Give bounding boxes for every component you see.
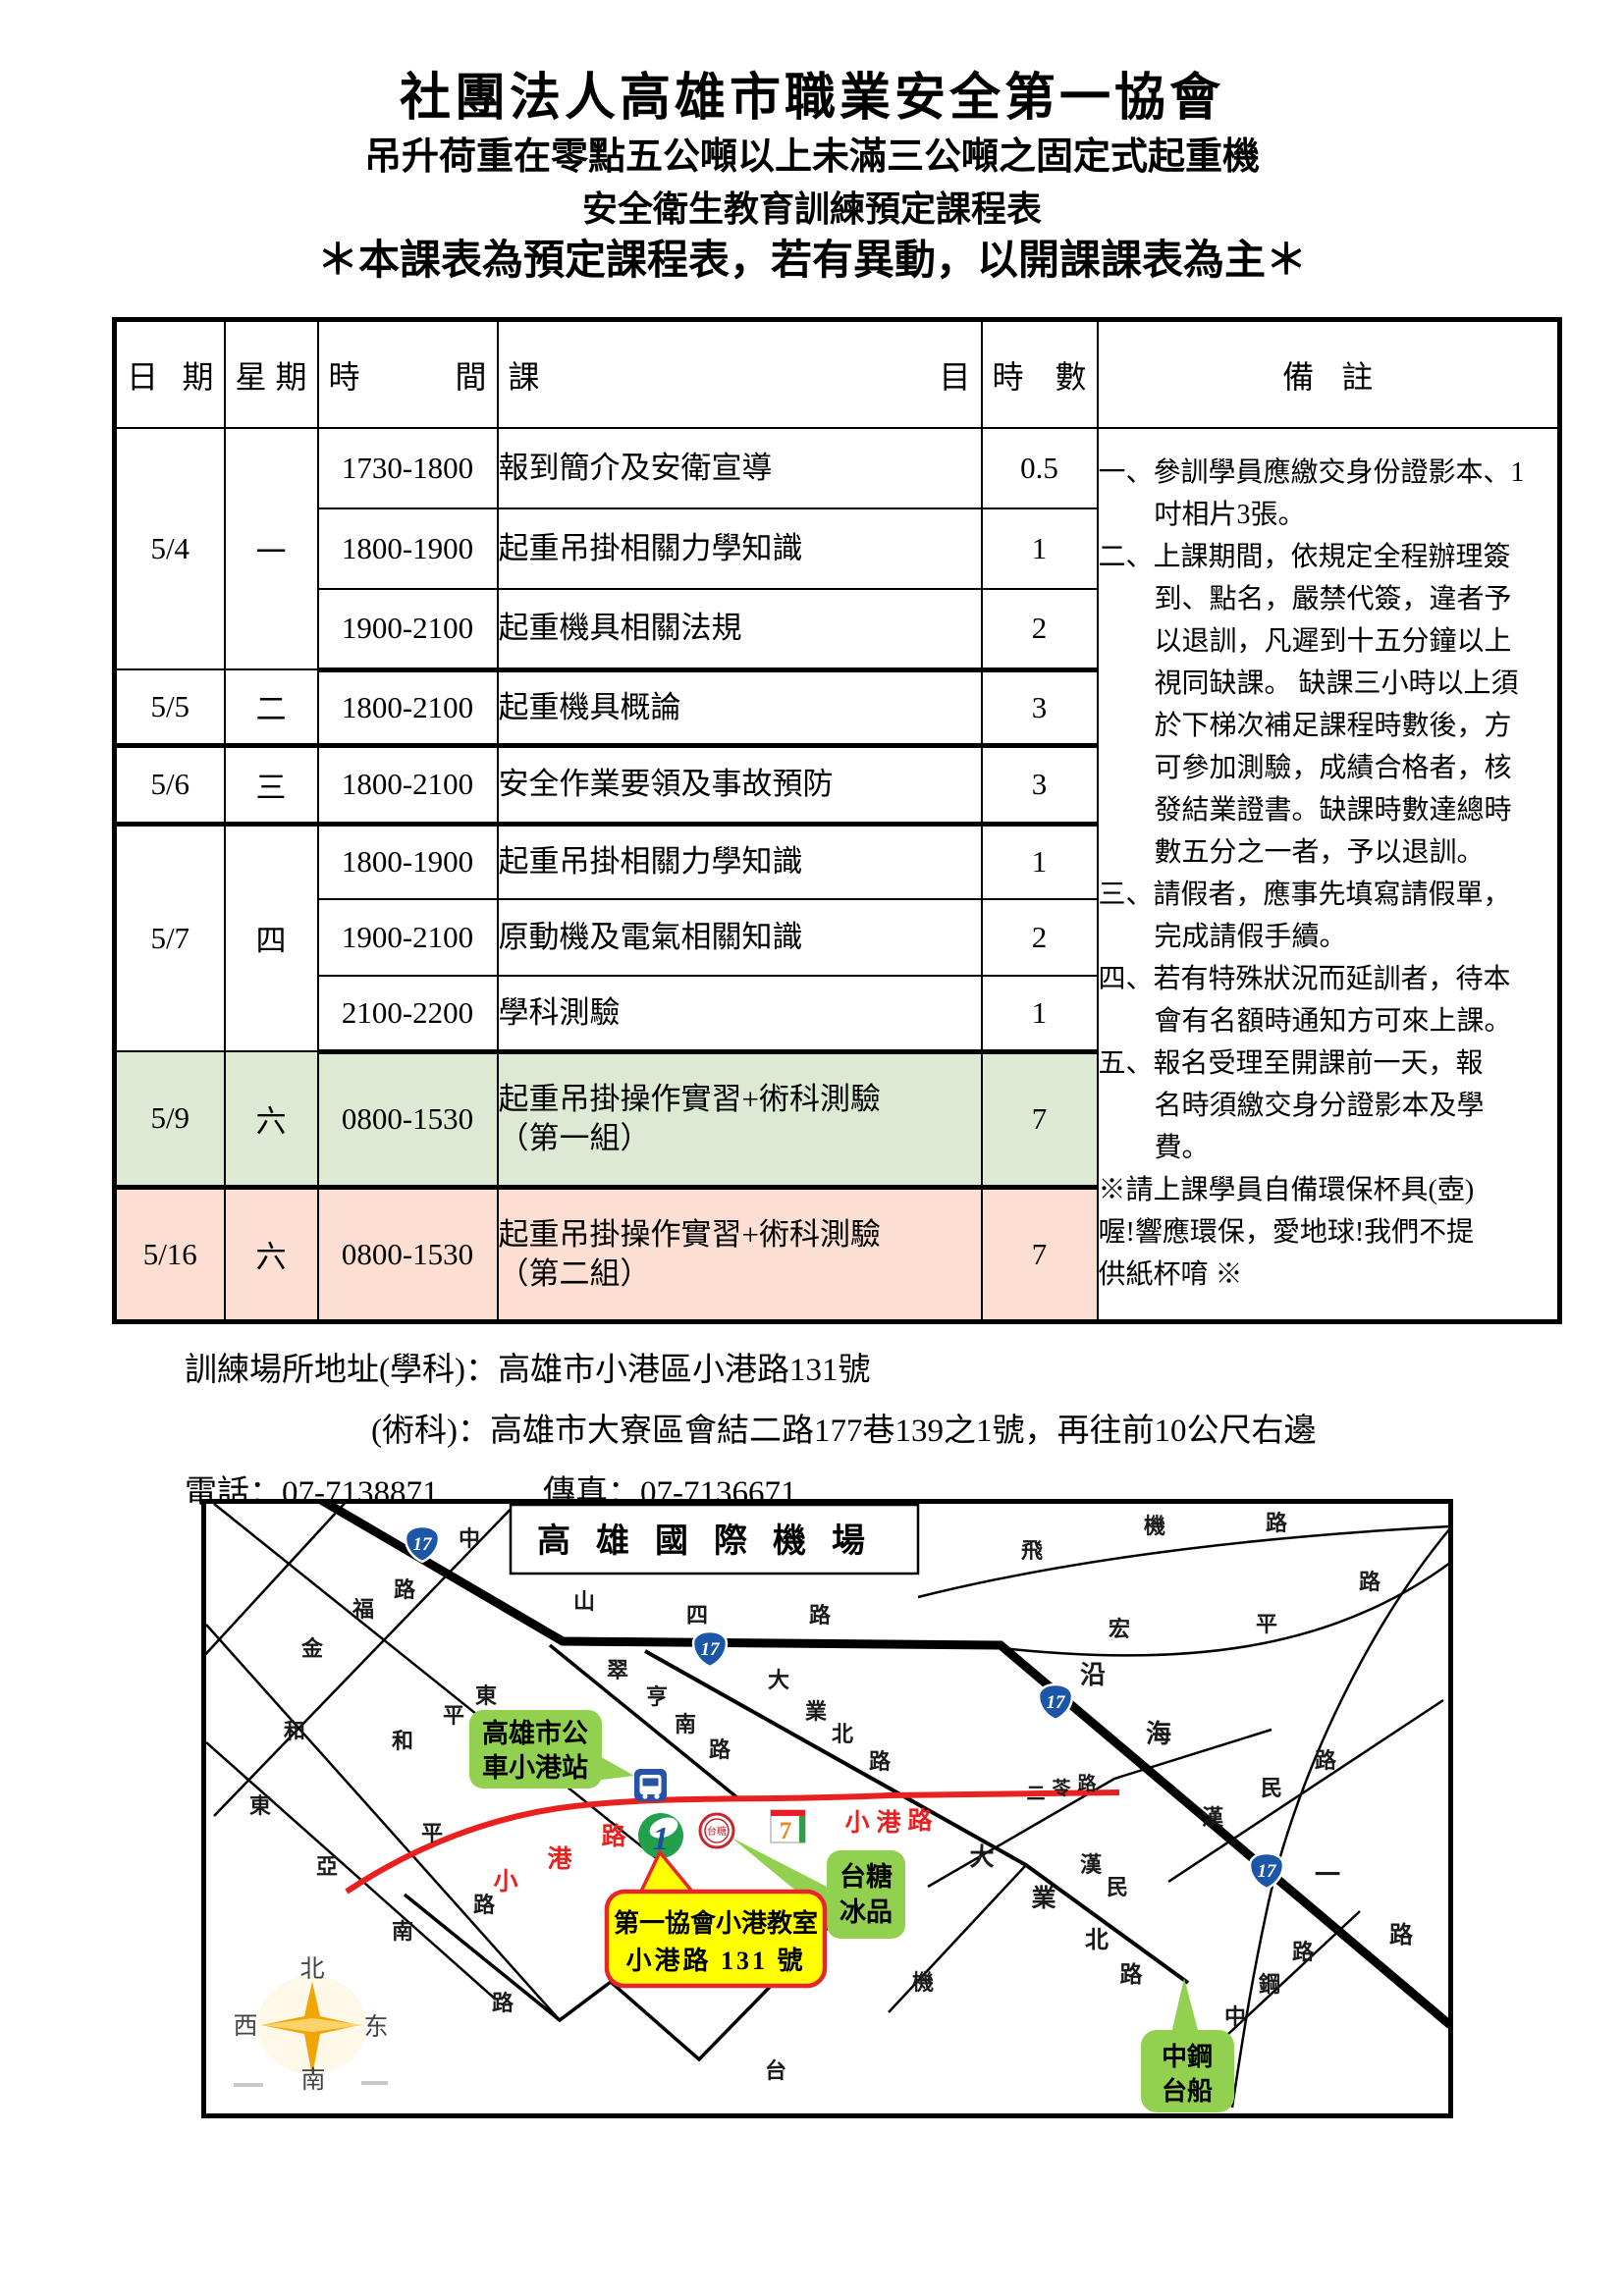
map-road-label: 路	[473, 1893, 496, 1917]
note-line: 視同缺課。 缺課三小時以上須	[1099, 663, 1558, 705]
course-cell: 安全作業要領及事故預防	[498, 745, 982, 824]
map-road-label: 平	[421, 1821, 443, 1845]
course-subtitle-2: 安全衛生教育訓練預定課程表	[0, 185, 1624, 234]
taisugar-ice-label-line2: 冰品	[839, 1897, 893, 1927]
header-char: 目	[939, 352, 970, 398]
bus-station-label-line2: 車小港站	[482, 1753, 588, 1783]
map-road-label: 路	[1266, 1511, 1288, 1535]
map-road-label: 平	[1256, 1612, 1277, 1636]
course-schedule-table: 日期 星期 時間 課目 時數 備註 5/4 一 1730-1800 報到簡介及安…	[112, 317, 1562, 1324]
note-line: 五、報名受理至開課前一天，報	[1099, 1042, 1558, 1085]
weekday-cell: 四	[225, 824, 318, 1051]
map-road-label: 亨	[646, 1684, 668, 1709]
taisugar-seal-text: 台糖	[707, 1825, 727, 1838]
time-cell: 0800-1530	[318, 1187, 498, 1321]
scanned-course-schedule-page: 社團法人高雄市職業安全第一協會 吊升荷重在零點五公噸以上未滿三公噸之固定式起重機…	[0, 0, 1624, 2296]
note-line: 於下梯次補足課程時數後，方	[1099, 705, 1558, 747]
time-cell: 0800-1530	[318, 1051, 498, 1187]
svg-text:17: 17	[413, 1534, 434, 1555]
note-line: 名時須繳交身分證影本及學	[1099, 1085, 1558, 1127]
date-cell: 5/9	[115, 1051, 225, 1187]
map-road-label: 港	[876, 1808, 901, 1837]
date-cell: 5/16	[115, 1187, 225, 1321]
date-cell: 5/6	[115, 745, 225, 824]
map-road-label: 民	[1107, 1875, 1128, 1899]
map-road-label: 平	[443, 1703, 464, 1728]
airport-label-box: 高雄國際機場	[511, 1505, 918, 1574]
header-char: 間	[455, 352, 486, 398]
map-road-label: 大	[969, 1843, 994, 1871]
map-road-label: 中	[459, 1526, 480, 1551]
time-cell: 1800-1900	[318, 824, 498, 899]
note-line: 會有名額時通知方可來上課。	[1099, 1000, 1558, 1042]
map-road-label: 金	[300, 1636, 324, 1661]
header-char: 日	[127, 352, 158, 398]
map-road-label: 漢	[1080, 1852, 1103, 1877]
training-address-academic: 訓練場所地址(學科)：高雄市小港區小港路131號	[185, 1343, 870, 1390]
hours-cell: 7	[982, 1187, 1098, 1321]
map-road-label: 南	[675, 1712, 696, 1736]
csc-label-line2: 台船	[1162, 2076, 1213, 2106]
map-road-label: 亞	[316, 1854, 338, 1879]
compass-north-label: 北	[299, 1956, 324, 1983]
header-date: 日期	[115, 320, 225, 429]
seven-eleven-number: 7	[780, 1818, 792, 1844]
course-cell: 起重吊掛操作實習+術科測驗 （第一組）	[498, 1051, 982, 1187]
date-cell: 5/4	[115, 428, 225, 669]
map-road-label: 路	[1292, 1940, 1315, 1964]
header-notes: 備註	[1098, 320, 1560, 429]
hours-cell: 0.5	[982, 428, 1098, 508]
map-road-label: 機	[1144, 1514, 1165, 1538]
airport-label: 高雄國際機場	[537, 1522, 891, 1560]
map-road-label: 鋼	[1258, 1972, 1280, 1997]
notes-cell: 一、參訓學員應繳交身份證影本、1吋相片3張。二、上課期間，依規定全程辦理簽到、點…	[1098, 428, 1560, 1321]
note-line: 以退訓，凡遲到十五分鐘以上	[1099, 620, 1558, 663]
compass-south-label: 南	[300, 2066, 325, 2094]
map-road-label: 路	[394, 1577, 416, 1602]
note-line: 發結業證書。缺課時數達總時	[1099, 789, 1558, 831]
hours-cell: 2	[982, 899, 1098, 976]
map-road-label: 漢	[1202, 1805, 1224, 1830]
map-road-label: 路	[1359, 1570, 1381, 1594]
header-course: 課目	[498, 320, 982, 429]
map-road-label: 業	[1031, 1885, 1056, 1912]
header-char: 期	[182, 352, 213, 398]
course-cell: 起重吊掛操作實習+術科測驗 （第二組）	[498, 1187, 982, 1321]
map-road-label: 大	[768, 1668, 789, 1692]
time-cell: 1730-1800	[318, 428, 498, 508]
map-road-label: 東	[249, 1793, 271, 1818]
course-line2: （第二組）	[499, 1255, 981, 1294]
map-road-label: 機	[912, 1970, 934, 1995]
note-line: 喔!響應環保，愛地球!我們不提	[1099, 1211, 1558, 1254]
map-road-label: 路	[869, 1749, 892, 1774]
note-line: 完成請假手續。	[1099, 916, 1558, 958]
map-road-label: 和	[392, 1729, 413, 1753]
map-road-label: 路	[492, 1991, 514, 2015]
header-char: 時	[993, 352, 1024, 398]
map-road-label: 南	[392, 1919, 413, 1944]
schedule-disclaimer: ＊本課表為預定課程表，若有異動，以開課課表為主＊	[0, 234, 1624, 289]
note-line: 供紙杯唷 ※	[1099, 1254, 1558, 1296]
weekday-cell: 六	[225, 1187, 318, 1321]
map-road-label: 小	[844, 1809, 869, 1837]
csc-label-line1: 中鋼	[1162, 2043, 1213, 2071]
map-road-label: 路	[1389, 1921, 1414, 1949]
table-row: 5/4 一 1730-1800 報到簡介及安衛宣導 0.5 一、參訓學員應繳交身…	[115, 428, 1560, 508]
course-cell: 起重吊掛相關力學知識	[498, 824, 982, 899]
map-road-label: 福	[352, 1597, 374, 1622]
note-line: 到、點名，嚴禁代簽，違者予	[1099, 578, 1558, 620]
time-cell: 1900-2100	[318, 899, 498, 976]
time-cell: 1900-2100	[318, 589, 498, 669]
header-char: 期	[275, 352, 306, 398]
weekday-cell: 二	[225, 669, 318, 745]
hours-cell: 1	[982, 824, 1098, 899]
map-road-label: 路	[1120, 1961, 1144, 1987]
bus-station-label-line1: 高雄市公	[482, 1718, 588, 1748]
course-cell: 起重機具相關法規	[498, 589, 982, 669]
header-time: 時間	[318, 320, 498, 429]
date-cell: 5/7	[115, 824, 225, 1051]
note-line: 四、若有特殊狀況而延訓者，待本	[1099, 958, 1558, 1000]
svg-text:17: 17	[1258, 1861, 1278, 1882]
map-road-label: 路	[907, 1807, 933, 1835]
map-road-label: 二	[1026, 1784, 1045, 1804]
location-map: 中山四路翠亨南路大業北路沿海二苓路漢民路漢民宏平路飛機路一路中鋼路機台大業北路福…	[201, 1499, 1453, 2118]
map-road-label: 和	[284, 1719, 305, 1743]
map-road-label: 宏	[1109, 1617, 1130, 1641]
note-line: ※請上課學員自備環保杯具(壺)	[1099, 1169, 1558, 1211]
map-road-label: 業	[805, 1699, 828, 1724]
course-cell: 報到簡介及安衛宣導	[498, 428, 982, 508]
time-cell: 1800-2100	[318, 669, 498, 745]
map-road-label: 路	[709, 1737, 731, 1762]
title-block: 社團法人高雄市職業安全第一協會 吊升荷重在零點五公噸以上未滿三公噸之固定式起重機…	[0, 69, 1624, 289]
course-line1: 起重吊掛操作實習+術科測驗	[499, 1080, 981, 1119]
map-background	[201, 1499, 1453, 2118]
map-road-label: 民	[1261, 1776, 1282, 1800]
hours-cell: 7	[982, 1051, 1098, 1187]
note-line: 吋相片3張。	[1099, 494, 1558, 536]
svg-text:17: 17	[1047, 1692, 1067, 1713]
header-char: 星	[236, 352, 267, 398]
map-road-label: 山	[573, 1589, 595, 1614]
course-cell: 學科測驗	[498, 976, 982, 1051]
header-char: 備	[1282, 352, 1314, 398]
map-road-label: 路	[1077, 1772, 1097, 1794]
map-road-label: 苓	[1051, 1777, 1071, 1799]
taisugar-seal-icon: 台糖	[700, 1814, 733, 1847]
weekday-cell: 一	[225, 428, 318, 669]
header-char: 數	[1055, 352, 1086, 398]
map-road-label: 沿	[1080, 1661, 1106, 1689]
date-cell: 5/5	[115, 669, 225, 745]
classroom-label-line2: 小港路 131 號	[625, 1946, 805, 1975]
taisugar-ice-label-line1: 台糖	[839, 1861, 893, 1892]
course-line2: （第一組）	[499, 1119, 981, 1158]
header-hours: 時數	[982, 320, 1098, 429]
classroom-label-line1: 第一協會小港教室	[614, 1908, 818, 1938]
seven-eleven-icon: 7	[771, 1810, 805, 1844]
hours-cell: 3	[982, 669, 1098, 745]
note-line: 二、上課期間，依規定全程辦理簽	[1099, 536, 1558, 578]
table-header-row: 日期 星期 時間 課目 時數 備註	[115, 320, 1560, 429]
course-cell: 起重吊掛相關力學知識	[498, 508, 982, 589]
map-road-label: 四	[686, 1603, 708, 1628]
compass-east-label: 东	[363, 2013, 388, 2041]
organization-title: 社團法人高雄市職業安全第一協會	[0, 69, 1624, 130]
map-road-label: 中	[1224, 2004, 1246, 2029]
map-road-label: 路	[809, 1603, 832, 1628]
training-address-practical: (術科)：高雄市大寮區會結二路177巷139之1號，再往前10公尺右邊	[371, 1404, 1316, 1451]
note-line: 可參加測驗，成績合格者，核	[1099, 747, 1558, 789]
map-road-label: 東	[475, 1683, 497, 1708]
map-road-label: 飛	[1021, 1538, 1043, 1563]
svg-text:17: 17	[701, 1639, 722, 1660]
header-char: 時	[329, 352, 360, 398]
note-line: 三、請假者，應事先填寫請假單，	[1099, 874, 1558, 916]
map-road-label: 路	[1315, 1748, 1337, 1773]
time-cell: 2100-2200	[318, 976, 498, 1051]
note-line: 數五分之一者，予以退訓。	[1099, 831, 1558, 874]
map-road-label: 北	[832, 1722, 853, 1746]
map-road-label: 北	[1085, 1927, 1109, 1953]
note-line: 費。	[1099, 1127, 1558, 1169]
header-char: 課	[509, 352, 540, 398]
weekday-cell: 六	[225, 1051, 318, 1187]
map-road-label: 台	[765, 2058, 786, 2083]
compass-west-label: 西	[233, 2013, 257, 2040]
note-line: 一、參訓學員應繳交身份證影本、1	[1099, 452, 1558, 494]
bus-stop-icon	[634, 1769, 667, 1801]
course-cell: 起重機具概論	[498, 669, 982, 745]
hours-cell: 3	[982, 745, 1098, 824]
header-weekday: 星期	[225, 320, 318, 429]
header-char: 註	[1341, 352, 1373, 398]
map-road-label: 海	[1146, 1720, 1171, 1748]
map-road-label: 路	[601, 1823, 626, 1850]
time-cell: 1800-2100	[318, 745, 498, 824]
course-subtitle-1: 吊升荷重在零點五公噸以上未滿三公噸之固定式起重機	[0, 130, 1624, 185]
course-line1: 起重吊掛操作實習+術科測驗	[499, 1215, 981, 1255]
hours-cell: 1	[982, 976, 1098, 1051]
map-road-label: 港	[547, 1844, 572, 1873]
weekday-cell: 三	[225, 745, 318, 824]
map-road-label: 翠	[607, 1658, 628, 1682]
hours-cell: 1	[982, 508, 1098, 589]
course-cell: 原動機及電氣相關知識	[498, 899, 982, 976]
hours-cell: 2	[982, 589, 1098, 669]
time-cell: 1800-1900	[318, 508, 498, 589]
map-road-label: 一	[1315, 1861, 1340, 1890]
map-road-label: 小	[493, 1868, 517, 1896]
